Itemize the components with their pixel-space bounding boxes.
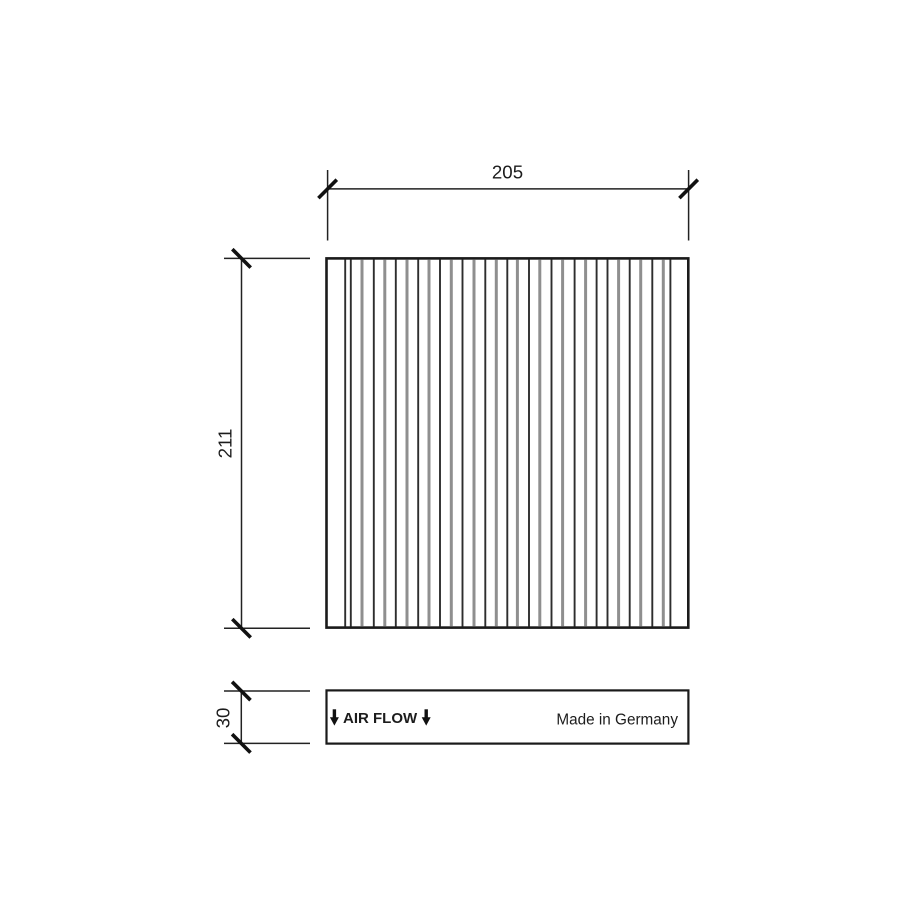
- svg-text:Made in Germany: Made in Germany: [556, 711, 678, 728]
- svg-text:AIR FLOW: AIR FLOW: [343, 710, 418, 727]
- svg-text:205: 205: [492, 162, 523, 183]
- svg-text:30: 30: [213, 708, 234, 729]
- svg-text:211: 211: [215, 429, 236, 459]
